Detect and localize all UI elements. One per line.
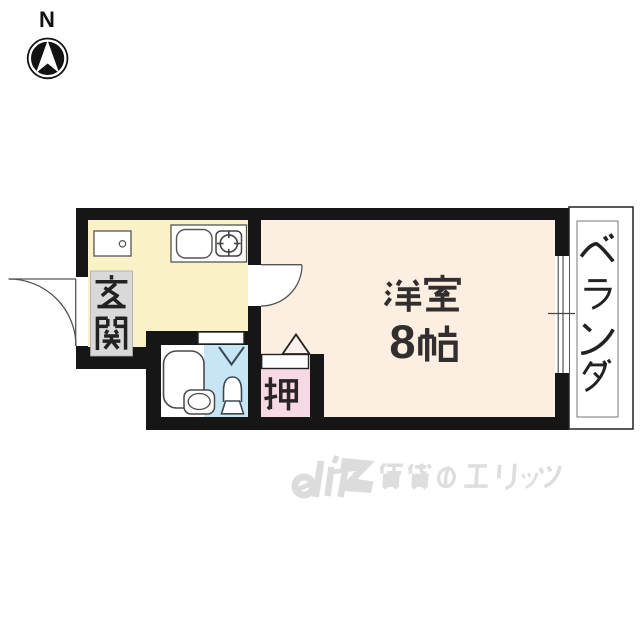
svg-text:N: N bbox=[39, 7, 55, 32]
svg-text:8: 8 bbox=[389, 315, 415, 368]
